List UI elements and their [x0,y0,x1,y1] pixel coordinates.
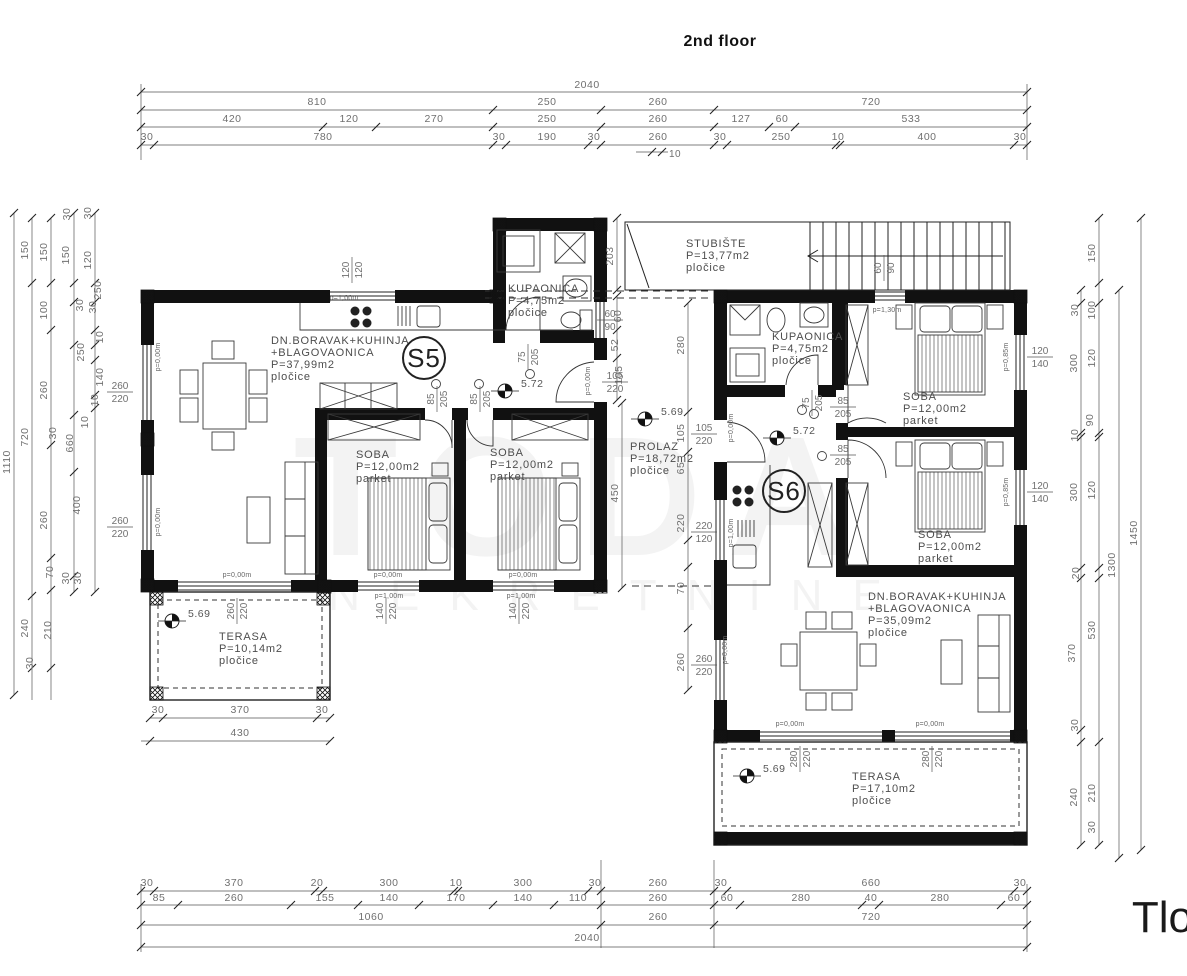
svg-text:220: 220 [675,513,687,532]
svg-text:PROLAZ: PROLAZ [630,441,679,453]
svg-text:30: 30 [493,131,506,143]
svg-text:p=0,85m: p=0,85m [1003,343,1010,372]
svg-text:720: 720 [861,96,880,108]
svg-text:260: 260 [38,510,50,529]
svg-text:2040: 2040 [574,79,599,91]
svg-text:30: 30 [714,131,727,143]
svg-text:260: 260 [112,381,129,392]
svg-text:p=1,00m: p=1,00m [375,593,404,600]
svg-text:pločice: pločice [868,627,908,639]
svg-text:30: 30 [316,704,329,716]
svg-text:20: 20 [1070,567,1082,580]
svg-text:530: 530 [1086,620,1098,639]
svg-text:TERASA: TERASA [852,771,901,783]
svg-text:20: 20 [311,877,324,889]
svg-text:+BLAGOVAONICA: +BLAGOVAONICA [868,603,971,615]
svg-text:52: 52 [609,339,621,352]
svg-text:S5: S5 [407,343,441,373]
svg-text:30: 30 [141,131,154,143]
svg-text:1450: 1450 [1128,520,1140,545]
svg-text:10: 10 [1069,429,1081,442]
svg-text:140: 140 [513,892,532,904]
svg-text:P=12,00m2: P=12,00m2 [490,459,554,471]
svg-text:10: 10 [450,877,463,889]
svg-text:220: 220 [112,394,129,405]
svg-text:85: 85 [426,393,437,405]
svg-text:220: 220 [239,602,250,619]
svg-text:10: 10 [94,331,106,344]
svg-text:30: 30 [60,572,72,585]
svg-text:150: 150 [1086,243,1098,262]
svg-text:240: 240 [1068,787,1080,806]
dishrack-icon [398,306,410,326]
svg-text:parket: parket [490,471,525,483]
svg-text:30: 30 [1014,877,1027,889]
svg-text:300: 300 [1068,482,1080,501]
svg-text:+BLAGOVAONICA: +BLAGOVAONICA [271,347,374,359]
svg-text:85: 85 [837,444,849,455]
svg-text:5.72: 5.72 [521,378,543,390]
svg-text:220: 220 [934,750,945,767]
svg-text:60: 60 [604,309,616,320]
svg-text:260: 260 [648,131,667,143]
svg-text:260: 260 [648,877,667,889]
svg-text:250: 250 [537,96,556,108]
svg-text:205: 205 [482,390,493,407]
svg-text:30: 30 [152,704,165,716]
svg-text:SOBA: SOBA [490,447,524,459]
svg-text:100: 100 [38,300,50,319]
svg-text:30: 30 [47,427,59,440]
svg-text:280: 280 [791,892,810,904]
svg-text:120: 120 [1032,481,1049,492]
svg-text:120: 120 [341,261,352,278]
svg-text:140: 140 [379,892,398,904]
svg-text:120: 120 [1032,346,1049,357]
svg-text:220: 220 [112,529,129,540]
svg-text:P=17,10m2: P=17,10m2 [852,783,916,795]
svg-text:150: 150 [19,240,31,259]
svg-text:75: 75 [517,351,528,363]
svg-text:1300: 1300 [1106,552,1118,577]
svg-text:pločice: pločice [508,307,548,319]
svg-text:p=0,00m: p=0,00m [585,367,592,396]
svg-text:155: 155 [315,892,334,904]
svg-text:660: 660 [64,433,76,452]
floor-plan-sheet: 2nd floor Tlo TODA NEKRETNINE [0,0,1187,976]
svg-text:P=4,75m2: P=4,75m2 [772,343,829,355]
svg-text:370: 370 [224,877,243,889]
svg-text:533: 533 [901,113,920,125]
svg-text:30: 30 [1086,821,1098,834]
svg-text:85: 85 [469,393,480,405]
svg-text:210: 210 [1086,783,1098,802]
svg-text:S6: S6 [767,476,801,506]
svg-text:260: 260 [675,652,687,671]
svg-text:30: 30 [61,208,73,221]
svg-text:60: 60 [776,113,789,125]
svg-text:p=0,00m: p=0,00m [509,572,538,579]
svg-text:140: 140 [94,367,106,386]
svg-text:p=1,30m: p=1,30m [873,307,902,314]
svg-text:30: 30 [715,877,728,889]
svg-text:810: 810 [307,96,326,108]
svg-text:170: 170 [446,892,465,904]
svg-text:P=4,75m2: P=4,75m2 [508,295,565,307]
svg-text:NEKRETNINE: NEKRETNINE [328,571,912,620]
svg-text:205: 205 [814,394,825,411]
svg-text:p=1,00m: p=1,00m [728,519,735,548]
svg-text:250: 250 [771,131,790,143]
svg-text:30: 30 [82,207,94,220]
svg-text:260: 260 [648,911,667,923]
svg-text:KUPAONICA: KUPAONICA [772,331,843,343]
svg-text:85: 85 [837,396,849,407]
svg-text:450: 450 [609,483,621,502]
floor-plan-drawing: TODA NEKRETNINE [0,0,1187,976]
svg-text:120: 120 [339,113,358,125]
svg-text:p=0,00m: p=0,00m [155,343,162,372]
svg-text:105: 105 [675,423,687,442]
svg-text:140: 140 [375,602,386,619]
svg-text:720: 720 [19,427,31,446]
sink-icon [417,306,440,327]
svg-text:300: 300 [379,877,398,889]
svg-text:p=0,00m: p=0,00m [722,636,729,665]
svg-text:P=18,72m2: P=18,72m2 [630,453,694,465]
svg-text:260: 260 [696,654,713,665]
svg-text:370: 370 [1066,643,1078,662]
svg-text:140: 140 [1032,494,1049,505]
svg-text:P=13,77m2: P=13,77m2 [686,250,750,262]
bed-s6-2 [896,440,1003,532]
svg-text:p=0,00m: p=0,00m [155,508,162,537]
svg-text:pločice: pločice [686,262,726,274]
svg-text:SOBA: SOBA [903,391,937,403]
svg-text:P=35,09m2: P=35,09m2 [868,615,932,627]
svg-text:30: 30 [589,877,602,889]
svg-text:1060: 1060 [358,911,383,923]
svg-text:220: 220 [696,436,713,447]
svg-text:260: 260 [226,602,237,619]
svg-text:105: 105 [696,423,713,434]
svg-text:210: 210 [42,620,54,639]
svg-text:220: 220 [521,602,532,619]
svg-text:203: 203 [604,246,616,265]
svg-text:60: 60 [721,892,734,904]
svg-text:1110: 1110 [1,450,13,474]
svg-text:70: 70 [675,582,687,595]
svg-text:120: 120 [1086,480,1098,499]
svg-text:660: 660 [861,877,880,889]
svg-text:240: 240 [19,618,31,637]
svg-text:140: 140 [1032,359,1049,370]
svg-text:30: 30 [1069,304,1081,317]
svg-text:30: 30 [87,301,99,314]
svg-text:370: 370 [230,704,249,716]
stairs [625,222,1010,290]
svg-text:280: 280 [789,750,800,767]
svg-text:pločice: pločice [852,795,892,807]
svg-text:SOBA: SOBA [918,529,952,541]
svg-text:220: 220 [607,384,624,395]
svg-text:P=37,99m2: P=37,99m2 [271,359,335,371]
svg-text:5.69: 5.69 [763,763,785,775]
stove-icon [351,307,372,328]
svg-text:250: 250 [75,342,87,361]
svg-text:260: 260 [648,892,667,904]
svg-text:280: 280 [921,750,932,767]
svg-text:P=12,00m2: P=12,00m2 [903,403,967,415]
svg-text:2040: 2040 [574,932,599,944]
svg-text:75: 75 [801,397,812,409]
svg-text:p=1,00m: p=1,00m [330,295,359,302]
svg-text:5.69: 5.69 [188,608,210,620]
svg-text:pločice: pločice [630,465,670,477]
svg-text:260: 260 [224,892,243,904]
svg-text:720: 720 [861,911,880,923]
svg-text:120: 120 [82,250,94,269]
svg-text:5.69: 5.69 [661,406,683,418]
svg-text:280: 280 [675,335,687,354]
svg-text:STUBIŠTE: STUBIŠTE [686,237,746,250]
svg-text:190: 190 [537,131,556,143]
svg-text:40: 40 [865,892,878,904]
svg-text:110: 110 [569,892,587,904]
svg-text:p=0,00m: p=0,00m [223,572,252,579]
svg-text:205: 205 [530,348,541,365]
svg-text:205: 205 [439,390,450,407]
svg-text:220: 220 [696,667,713,678]
svg-text:30: 30 [1069,719,1081,732]
svg-text:30: 30 [24,657,36,670]
svg-text:780: 780 [313,131,332,143]
svg-text:120: 120 [354,261,365,278]
svg-text:140: 140 [508,602,519,619]
svg-text:30: 30 [141,877,154,889]
svg-text:30: 30 [1014,131,1027,143]
svg-text:260: 260 [112,516,129,527]
svg-text:pločice: pločice [772,355,812,367]
svg-text:30: 30 [72,572,84,585]
svg-text:p=0,00m: p=0,00m [776,721,805,728]
svg-text:400: 400 [917,131,936,143]
svg-text:P=12,00m2: P=12,00m2 [356,461,420,473]
svg-text:100: 100 [1086,300,1098,319]
svg-text:90: 90 [604,322,616,333]
svg-text:270: 270 [424,113,443,125]
svg-text:220: 220 [388,602,399,619]
svg-text:70: 70 [44,566,56,579]
svg-text:TERASA: TERASA [219,631,268,643]
svg-text:parket: parket [356,473,391,485]
svg-text:280: 280 [930,892,949,904]
svg-text:260: 260 [648,113,667,125]
svg-text:120: 120 [1086,348,1098,367]
svg-text:120: 120 [696,534,713,545]
svg-text:p=1,00m: p=1,00m [507,593,536,600]
svg-text:250: 250 [537,113,556,125]
svg-text:5.72: 5.72 [793,425,815,437]
svg-text:KUPAONICA: KUPAONICA [508,283,579,295]
svg-text:430: 430 [230,727,249,739]
svg-text:10: 10 [832,131,845,143]
svg-text:150: 150 [60,245,72,264]
svg-text:P=12,00m2: P=12,00m2 [918,541,982,553]
svg-text:250: 250 [92,280,104,299]
svg-text:60: 60 [873,262,884,274]
svg-text:260: 260 [648,96,667,108]
svg-text:85: 85 [153,892,166,904]
svg-text:parket: parket [903,415,938,427]
svg-text:pločice: pločice [219,655,259,667]
svg-text:p=0,00m: p=0,00m [728,414,735,443]
svg-text:127: 127 [731,113,750,125]
svg-text:10: 10 [79,416,91,429]
svg-text:60: 60 [1008,892,1021,904]
svg-text:30: 30 [74,299,86,312]
svg-text:90: 90 [1084,414,1096,427]
svg-text:parket: parket [918,553,953,565]
svg-text:SOBA: SOBA [356,449,390,461]
svg-text:220: 220 [696,521,713,532]
svg-text:10: 10 [89,394,101,407]
svg-text:105: 105 [607,371,624,382]
svg-text:300: 300 [1068,353,1080,372]
svg-text:150: 150 [38,242,50,261]
svg-text:205: 205 [835,409,852,420]
svg-text:205: 205 [835,457,852,468]
svg-text:DN.BORAVAK+KUHINJA: DN.BORAVAK+KUHINJA [868,591,1006,603]
svg-text:p=0,00m: p=0,00m [916,721,945,728]
svg-text:400: 400 [71,495,83,514]
svg-text:p=0,00m: p=0,00m [374,572,403,579]
svg-text:300: 300 [513,877,532,889]
svg-text:10: 10 [669,149,681,160]
svg-text:220: 220 [802,750,813,767]
svg-text:260: 260 [38,380,50,399]
svg-text:pločice: pločice [271,371,311,383]
svg-text:DN.BORAVAK+KUHINJA: DN.BORAVAK+KUHINJA [271,335,409,347]
svg-text:p=0,85m: p=0,85m [1003,478,1010,507]
svg-text:30: 30 [588,131,601,143]
svg-text:P=10,14m2: P=10,14m2 [219,643,283,655]
svg-text:90: 90 [886,262,897,274]
bed-s6-1 [896,303,1003,395]
svg-text:420: 420 [222,113,241,125]
